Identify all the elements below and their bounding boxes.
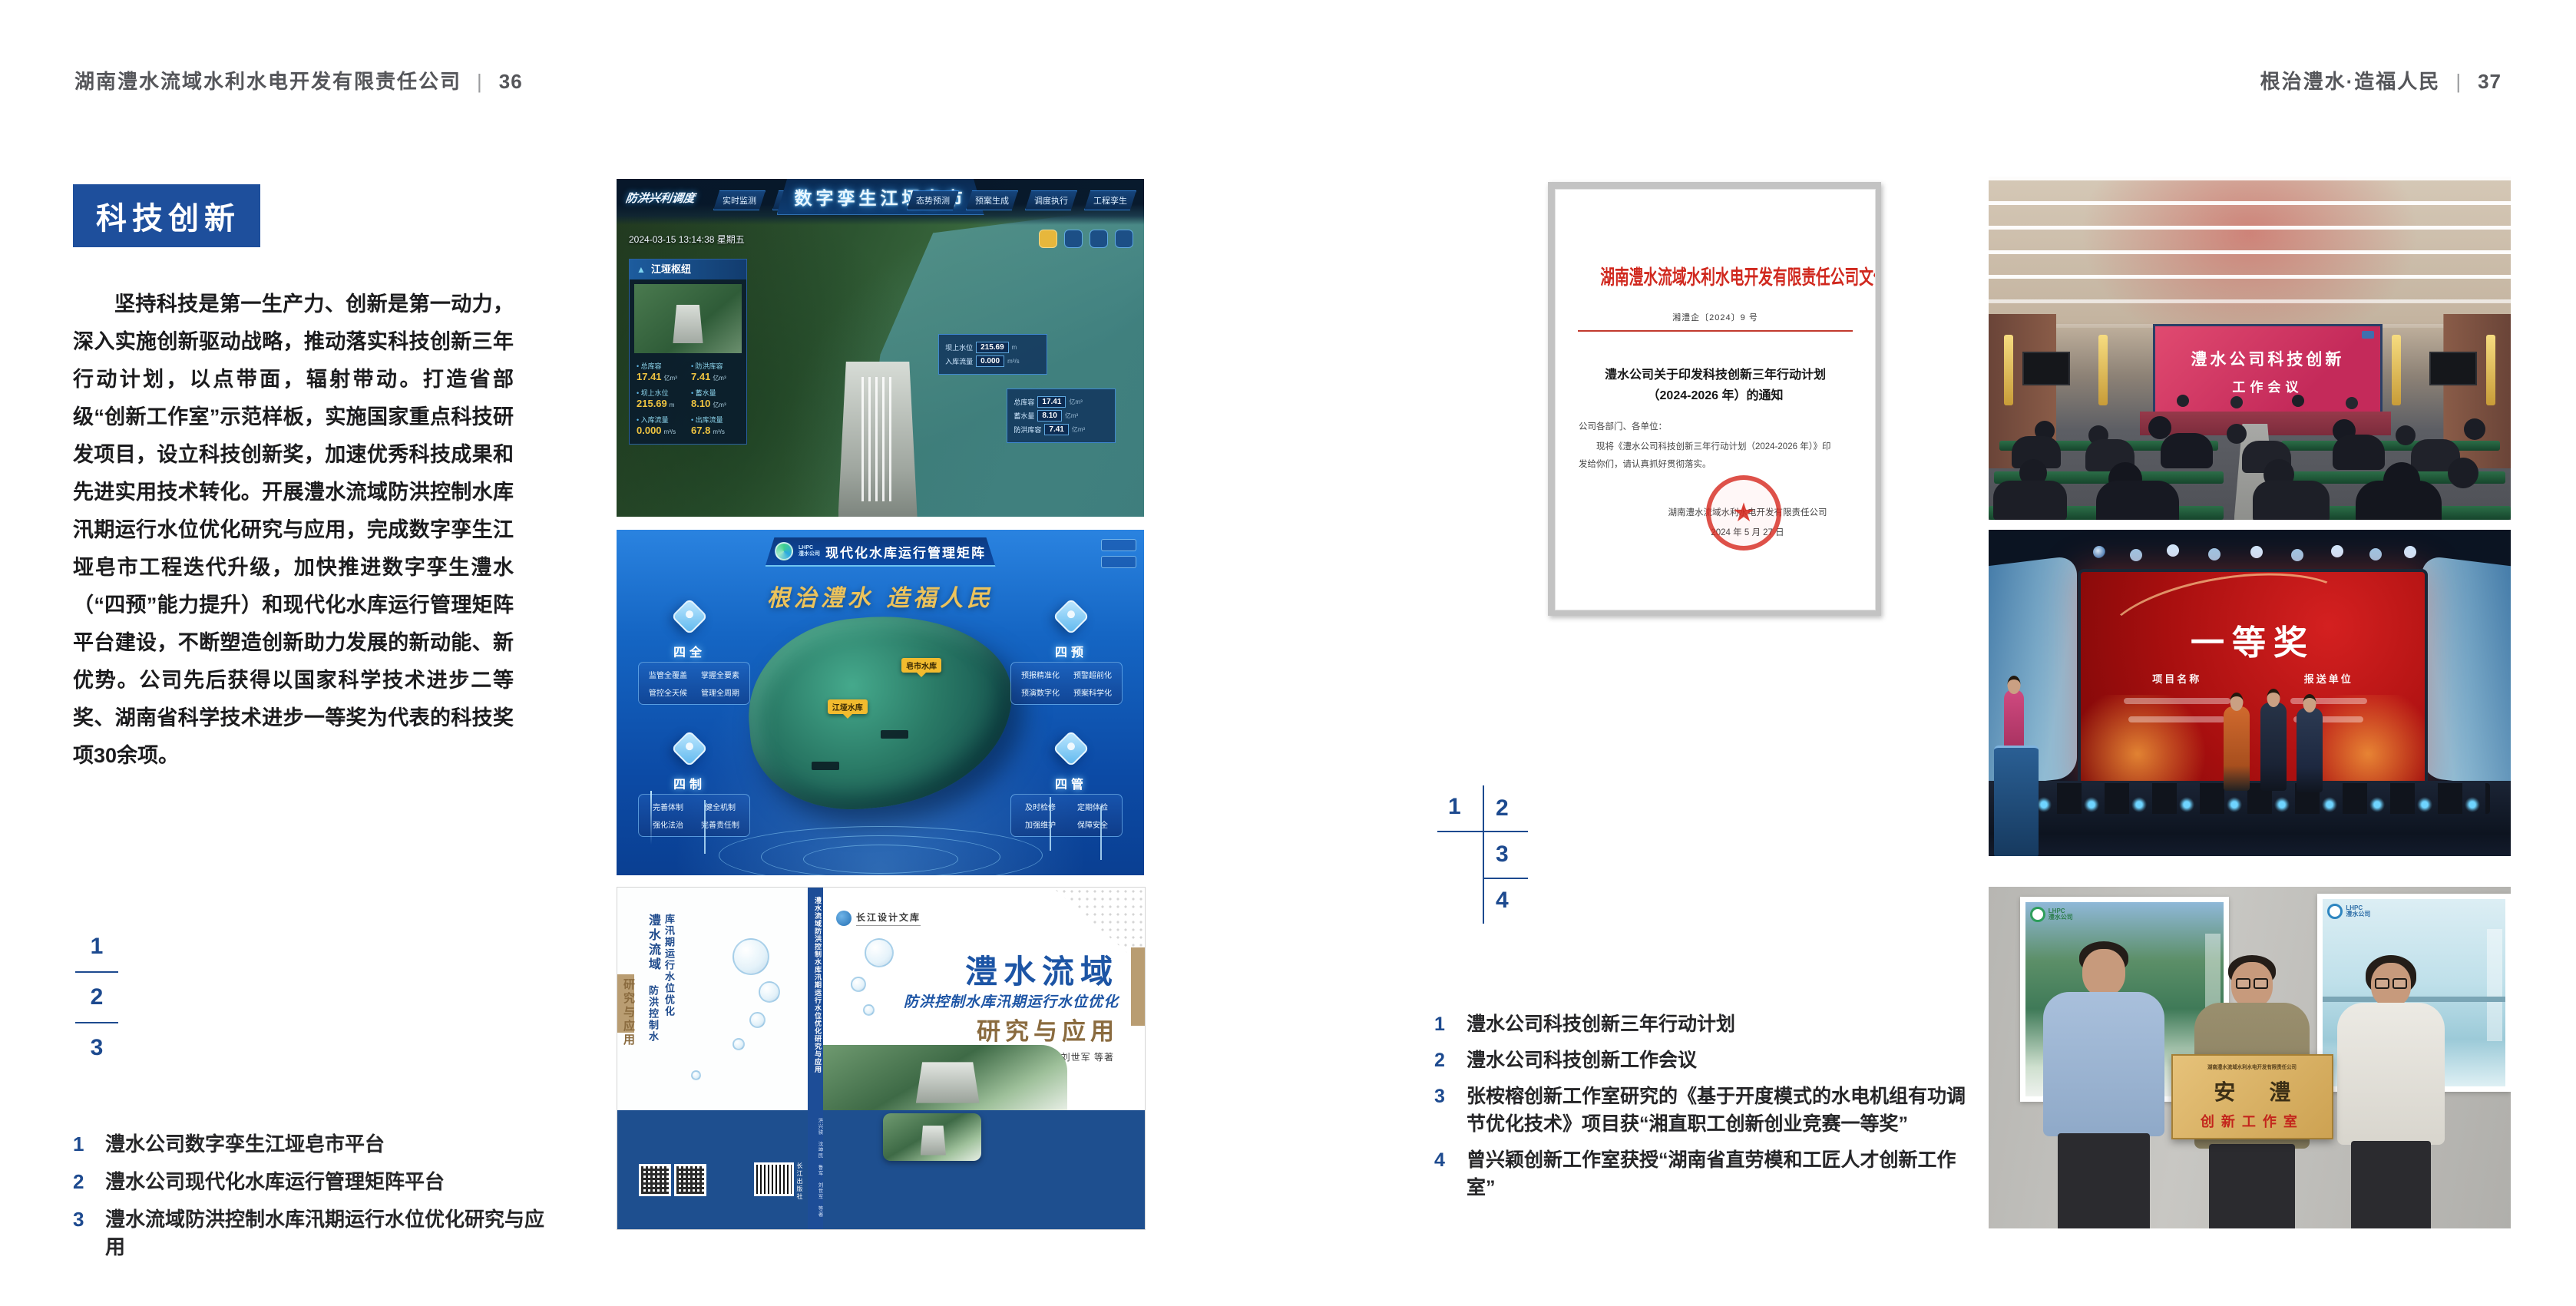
person-legs [2209,1144,2295,1228]
page-number-right: 37 [2478,70,2502,93]
settings-icon [1115,230,1133,248]
figure-index-hline [1483,878,1528,879]
callout-row: 总库容17.41亿m³ [1014,396,1109,408]
dashboard-tab: 调度执行 [1025,190,1077,210]
caption-row: 2 澧水公司现代化水库运行管理矩阵平台 [73,1168,549,1195]
header-separator: | [477,70,484,93]
layers-icon [1064,230,1083,248]
ceiling-light-strips [1989,177,2511,335]
caption-text: 澧水公司科技创新工作会议 [1467,1046,1697,1074]
figure-index-vline [1483,785,1484,924]
dashboard-timestamp: 2024-03-15 13:14:38 星期五 [629,233,745,246]
book-title-sub: 防洪控制水库汛期运行水位优化 [904,990,1119,1011]
matrix-top-button [1101,556,1136,568]
figure-book-cover: 澧水流域 防洪控制水库汛期运行水位优化 研究与应用 长江出版社 澧水流域防洪控制… [617,887,1146,1230]
captions-right: 1 澧水公司科技创新三年行动计划 2 澧水公司科技创新工作会议 3 张桉榕创新工… [1434,1010,1979,1210]
book-back-cover: 澧水流域 防洪控制水库汛期运行水位优化 研究与应用 长江出版社 [617,888,808,1229]
matrix-header: LHPC澧水公司 现代化水库运行管理矩阵 [766,537,996,567]
lhpc-logo-text: LHPC澧水公司 [799,545,820,557]
dashboard-toolbar-icons [1039,230,1133,248]
dam-structure [838,362,918,517]
photo-award-ceremony: 一等奖 项目名称 报送单位 [1989,530,2511,856]
caption-number: 2 [73,1168,105,1195]
document-body-line: 发给你们，请认真抓好贯彻落实。 [1579,458,1855,470]
panel-siguan: 及时检修 定期体检 加强维护 保障安全 [1010,794,1123,837]
center-aisle [2234,424,2276,520]
slogan-text: 根治澧水·造福人民 [2260,70,2441,93]
map-marker-jiangya: 江垭水库 [828,699,868,714]
caption-row: 3 张桉榕创新工作室研究的《基于开度模式的水电机组有功调节优化技术》项目获“湘直… [1434,1083,1979,1138]
caption-number: 1 [1434,1010,1467,1038]
stat-cell: 坝上水位215.69m [637,388,685,409]
screen-title-line2: 工作会议 [2232,376,2303,395]
stat-cell: 出库流量67.8m³/s [691,415,739,436]
light-pillar [650,791,652,845]
map-marker-small [881,730,908,739]
cover-dam-photo [823,1045,1067,1111]
caption-text: 澧水公司数字孪生江垭皂市平台 [105,1130,385,1158]
wall-lamp [2392,335,2401,405]
book-title-tail: 研究与应用 [977,1012,1119,1046]
document-number: 湘澧企〔2024〕9 号 [1556,311,1875,323]
figure-index-hline [1437,831,1528,832]
lhpc-logo-icon [775,542,793,560]
document-body-line: 现将《澧水公司科技创新三年行动计划（2024-2026 年）》印 [1579,440,1855,452]
person-left-blue-polo [2030,941,2176,1228]
back-cover-vertical-subtitle: 研究与应用 [620,978,637,1047]
caption-text: 曾兴颖创新工作室获授“湖南省直劳模和工匠人才创新工作室” [1467,1146,1979,1202]
bubble-decoration [865,938,894,967]
caption-row: 4 曾兴颖创新工作室获授“湖南省直劳模和工匠人才创新工作室” [1434,1146,1979,1202]
stat-cell: 防洪库容7.41亿m³ [691,361,739,382]
back-cover-bottom-band: 长江出版社 [617,1110,808,1229]
captions-left: 1 澧水公司数字孪生江垭皂市平台 2 澧水公司现代化水库运行管理矩阵平台 3 澧… [73,1130,549,1271]
panel-title: 四管 [1021,774,1121,792]
presenter-suit-silhouette [2260,703,2287,791]
wall-tv-screen [2429,352,2477,385]
audience-desk [2276,506,2511,520]
spine-title: 澧水流域防洪控制水库汛期运行水位优化研究与应用 [808,897,823,1073]
photo-innovation-workstation-group: LHPC澧水公司 LHPC澧水公司 [1989,887,2511,1228]
bubble-decoration [749,1012,766,1028]
bubble-decoration [691,1070,701,1080]
awardee-orange-silhouette [2224,706,2250,792]
dashboard-tabs-right: 态势预测 预案生成 调度执行 工程孪生 [907,190,1136,210]
screen-logo-icon [2362,331,2374,339]
figure-official-document: 湖南澧水流域水利水电开发有限责任公司文件 湘澧企〔2024〕9 号 澧水公司关于… [1548,182,1881,616]
figure-index-number: 2 [75,984,118,1010]
figure-index-number: 3 [1496,841,1509,868]
callout-row: 蓄水量8.10亿m³ [1014,410,1109,422]
caption-number: 2 [1434,1046,1467,1074]
person-right-white-tee [2323,955,2459,1228]
caption-row: 3 澧水流域防洪控制水库汛期运行水位优化研究与应用 [73,1205,549,1261]
panel-title: 四全 [640,642,739,660]
bubble-decoration [759,981,780,1003]
dashboard-tab: 预案生成 [966,190,1018,210]
stage-spotlights [2093,546,2105,558]
plaque-org-name: 湖南澧水流域水利水电开发有限责任公司 [2207,1063,2297,1071]
map-marker-zaoshi: 皂市水库 [901,658,941,673]
callout-row: 防洪库容7.41亿m³ [1014,424,1109,435]
bubble-decoration [863,1004,875,1016]
callout-row: 入库流量0.000m³/s [945,355,1040,367]
magazine-spread: 湖南澧水流域水利水电开发有限责任公司|36 根治澧水·造福人民|37 科技创新 … [0,0,2576,1306]
caption-text: 澧水流域防洪控制水库汛期运行水位优化研究与应用 [105,1205,549,1261]
wall-tv-screen [2022,352,2070,385]
caption-number: 3 [1434,1083,1467,1138]
caption-text: 张桉榕创新工作室研究的《基于开度模式的水电机组有功调节优化技术》项目获“湘直职工… [1467,1083,1979,1138]
bubble-decoration [851,977,866,992]
audience-desk [2281,441,2501,451]
lhpc-logo-icon: LHPC澧水公司 [2327,904,2370,919]
callout-row: 坝上水位215.69m [945,342,1040,353]
matrix-top-button [1101,539,1136,551]
water-level-callout: 坝上水位215.69m 入库流量0.000m³/s [938,334,1047,375]
document-salutation: 公司各部门、各单位： [1579,420,1667,432]
plaque-subtitle: 创新工作室 [2201,1111,2304,1131]
figure-index-number: 1 [75,934,118,960]
series-logo-icon [836,911,852,926]
bubble-decoration [732,938,769,975]
station-logo-icon: ▲ [637,264,646,275]
unit-text-bar [2290,698,2367,704]
figure-index-number: 1 [1448,794,1461,820]
locate-icon [1090,230,1108,248]
figure-index-left: 1 2 3 [75,934,118,1061]
bubble-decoration [732,1038,745,1050]
document-red-rule [1578,330,1853,332]
caption-text: 澧水公司科技创新三年行动计划 [1467,1010,1735,1038]
figure-digital-twin-dashboard: 防洪兴利调度 实时监测 洪水预报 防洪预警 数字孪生江垭皂市 态势预测 预案生成… [617,179,1144,517]
person-torso [2043,992,2164,1136]
publisher-vertical-text: 长江出版社 [795,1162,804,1201]
station-panel-header: ▲ 江垭枢纽 [630,260,746,279]
cover-dam-photo-small [883,1113,981,1161]
person-legs [2058,1133,2150,1228]
figure-index-number: 4 [1496,888,1509,914]
stat-cell: 入库流量0.000m³/s [637,415,685,436]
panel-sizhi: 完善体制 健全机制 强化法治 完善责任制 [638,794,750,837]
caption-text: 澧水公司现代化水库运行管理矩阵平台 [105,1168,445,1195]
wall-lamp [2486,335,2495,405]
figure-index-divider [75,971,118,973]
stat-cell: 蓄水量8.10亿m³ [691,388,739,409]
dashboard-tab: 态势预测 [907,190,959,210]
award-title: 一等奖 [2081,615,2426,664]
alert-icon [1039,230,1057,248]
lhpc-logo-icon: LHPC澧水公司 [2030,907,2073,922]
caption-row: 1 澧水公司科技创新三年行动计划 [1434,1010,1979,1038]
person-head [2008,676,2021,694]
front-cover-bottom-band: 〜 长江出版社 CHANGJIANG PRESS [823,1110,1145,1229]
book-front-cover: 长江设计文库 澧水流域 防洪控制水库汛期运行水位优化 研究与应用 洪兴骏 沈坤民… [823,888,1145,1229]
caption-number: 3 [73,1205,105,1261]
page-number-left: 36 [499,70,523,93]
station-info-panel: ▲ 江垭枢纽 总库容17.41亿m³ 防洪库容7.41亿m³ 坝上水位215.6… [629,259,747,445]
figure-index-divider [75,1022,118,1023]
official-seal-icon: ★ [1706,475,1781,551]
panel-siyu: 预报精准化 预警超前化 预演数字化 预案科学化 [1010,662,1123,705]
figure-index-number: 3 [75,1035,118,1061]
dashboard-tab: 实时监测 [713,190,766,210]
front-cover-tan-block [1131,947,1145,1026]
panelist-silhouettes [2177,395,2189,407]
project-text-bar [2128,716,2225,722]
person-legs [2351,1141,2431,1228]
document-page: 湖南澧水流域水利水电开发有限责任公司文件 湘澧企〔2024〕9 号 澧水公司关于… [1555,189,1876,610]
book-spine: 澧水流域防洪控制水库汛期运行水位优化研究与应用 洪兴骏 沈坤民 鲁军 刘世军 等… [808,888,823,1229]
award-column-projects: 项目名称 [2115,671,2239,722]
award-led-screen: 一等奖 项目名称 报送单位 [2078,569,2429,791]
plaque-name: 安澧 [2214,1076,2290,1106]
body-paragraph: 坚持科技是第一生产力、创新是第一动力，深入实施创新驱动战略，推动落实科技创新三年… [73,286,514,775]
host-podium [1994,746,2039,857]
station-photo-thumbnail [634,284,742,353]
spine-authors: 洪兴骏 沈坤民 鲁军 刘世军 等著 [808,1118,823,1218]
panel-title: 四预 [1021,642,1121,660]
company-name: 湖南澧水流域水利水电开发有限责任公司 [74,70,461,93]
back-cover-vertical-title: 澧水流域 防洪控制水库汛期运行水位优化 [643,914,676,1044]
header-separator: | [2455,70,2462,93]
figure-index-number: 2 [1496,795,1509,822]
project-text-bar [2124,698,2230,704]
dashboard-tab: 工程孪生 [1084,190,1136,210]
innovation-workstation-plaque: 湖南澧水流域水利水电开发有限责任公司 安澧 创新工作室 [2171,1054,2333,1139]
caption-row: 2 澧水公司科技创新工作会议 [1434,1046,1979,1074]
section-title-badge: 科技创新 [73,184,260,247]
document-letterhead: 湖南澧水流域水利水电开发有限责任公司文件 [1600,262,1830,290]
document-title: 澧水公司关于印发科技创新三年行动计划 （2024-2026 年）的通知 [1556,365,1875,406]
panel-title: 四制 [640,774,739,792]
book-title-main: 澧水流域 [965,946,1119,993]
person-head [2267,689,2280,707]
panel-siquan: 监管全覆盖 掌握全要素 管控全天候 管理全周期 [638,662,750,705]
stage-side-panel [2422,554,2511,792]
awardee-navy-silhouette [2297,708,2323,793]
map-marker-small [812,762,839,770]
station-panel-title: 江垭枢纽 [651,263,691,275]
wall-lamp [2098,335,2108,405]
dashboard-corner-label: 防洪兴利调度 [625,190,696,206]
figure-matrix-dashboard: LHPC澧水公司 现代化水库运行管理矩阵 根治澧水 造福人民 皂市水库 江垭水库… [617,530,1144,875]
poster-calligraphy-strip [2487,929,2502,1041]
radar-ring [803,845,958,874]
wall-lamp [2004,335,2013,405]
stat-cell: 总库容17.41亿m³ [637,361,685,382]
caption-row: 1 澧水公司数字孪生江垭皂市平台 [73,1130,549,1158]
person-face [2082,949,2125,997]
caption-number: 1 [73,1130,105,1158]
right-page-header: 根治澧水·造福人民|37 [2260,66,2502,94]
capacity-callout: 总库容17.41亿m³ 蓄水量8.10亿m³ 防洪库容7.41亿m³ [1007,388,1116,443]
left-page-header: 湖南澧水流域水利水电开发有限责任公司|36 [74,66,523,94]
caption-number: 4 [1434,1146,1467,1202]
person-head [2230,693,2244,711]
audience-desk [2276,471,2505,484]
qr-code [639,1164,671,1196]
station-stats-grid: 总库容17.41亿m³ 防洪库容7.41亿m³ 坝上水位215.69m 蓄水量8… [630,358,746,444]
person-head [2303,694,2316,713]
screen-title-line1: 澧水公司科技创新 [2191,347,2344,370]
person-torso [2337,1003,2445,1145]
photo-innovation-meeting: 澧水公司科技创新 工作会议 [1989,177,2511,520]
glasses-icon [2236,978,2268,989]
glasses-icon [2375,978,2407,989]
audience-bodies-row [1993,481,2067,520]
qr-code [674,1164,706,1196]
barcode [754,1162,794,1196]
series-badge: 长江设计文库 [836,911,921,926]
matrix-title: 现代化水库运行管理矩阵 [825,542,986,561]
